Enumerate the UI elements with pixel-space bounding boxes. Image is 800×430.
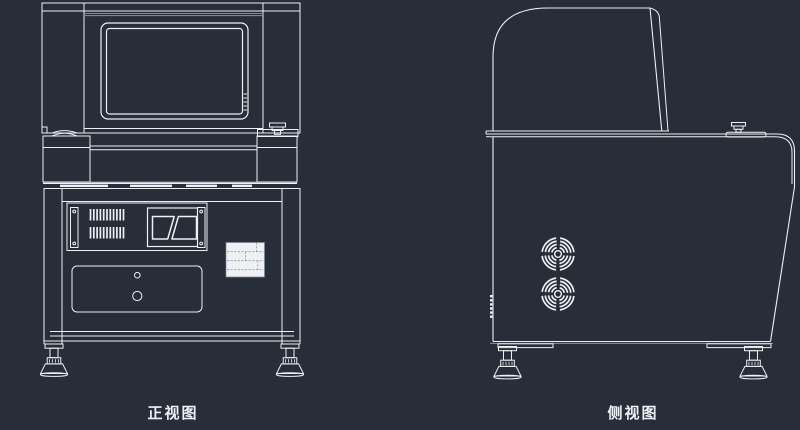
cad-canvas: 正视图 侧视图 xyxy=(0,0,800,430)
front-rack-panel xyxy=(67,203,207,251)
front-name-plate xyxy=(226,243,265,278)
technical-drawing xyxy=(0,0,800,430)
side-emergency-stop-icon xyxy=(726,123,766,138)
front-view-drawing xyxy=(40,3,303,376)
side-hood xyxy=(486,8,669,131)
side-fan-grilles xyxy=(542,238,574,310)
side-view-drawing xyxy=(486,8,795,379)
side-body xyxy=(486,131,795,348)
front-mid-band xyxy=(43,133,297,182)
fan-grille-icon xyxy=(542,278,574,310)
side-feet xyxy=(494,347,767,379)
front-monitor-buttons xyxy=(244,94,248,110)
front-monitor-screen xyxy=(101,23,248,119)
front-drawer-panel xyxy=(72,266,202,312)
fan-grille-icon xyxy=(542,238,574,270)
side-view-caption: 侧视图 xyxy=(578,402,688,423)
front-logo-bay xyxy=(148,208,198,247)
front-vent-grille-icon xyxy=(91,209,124,239)
front-view-caption: 正视图 xyxy=(118,402,228,423)
front-emergency-stop-icon xyxy=(258,123,299,137)
front-feet xyxy=(40,344,303,376)
